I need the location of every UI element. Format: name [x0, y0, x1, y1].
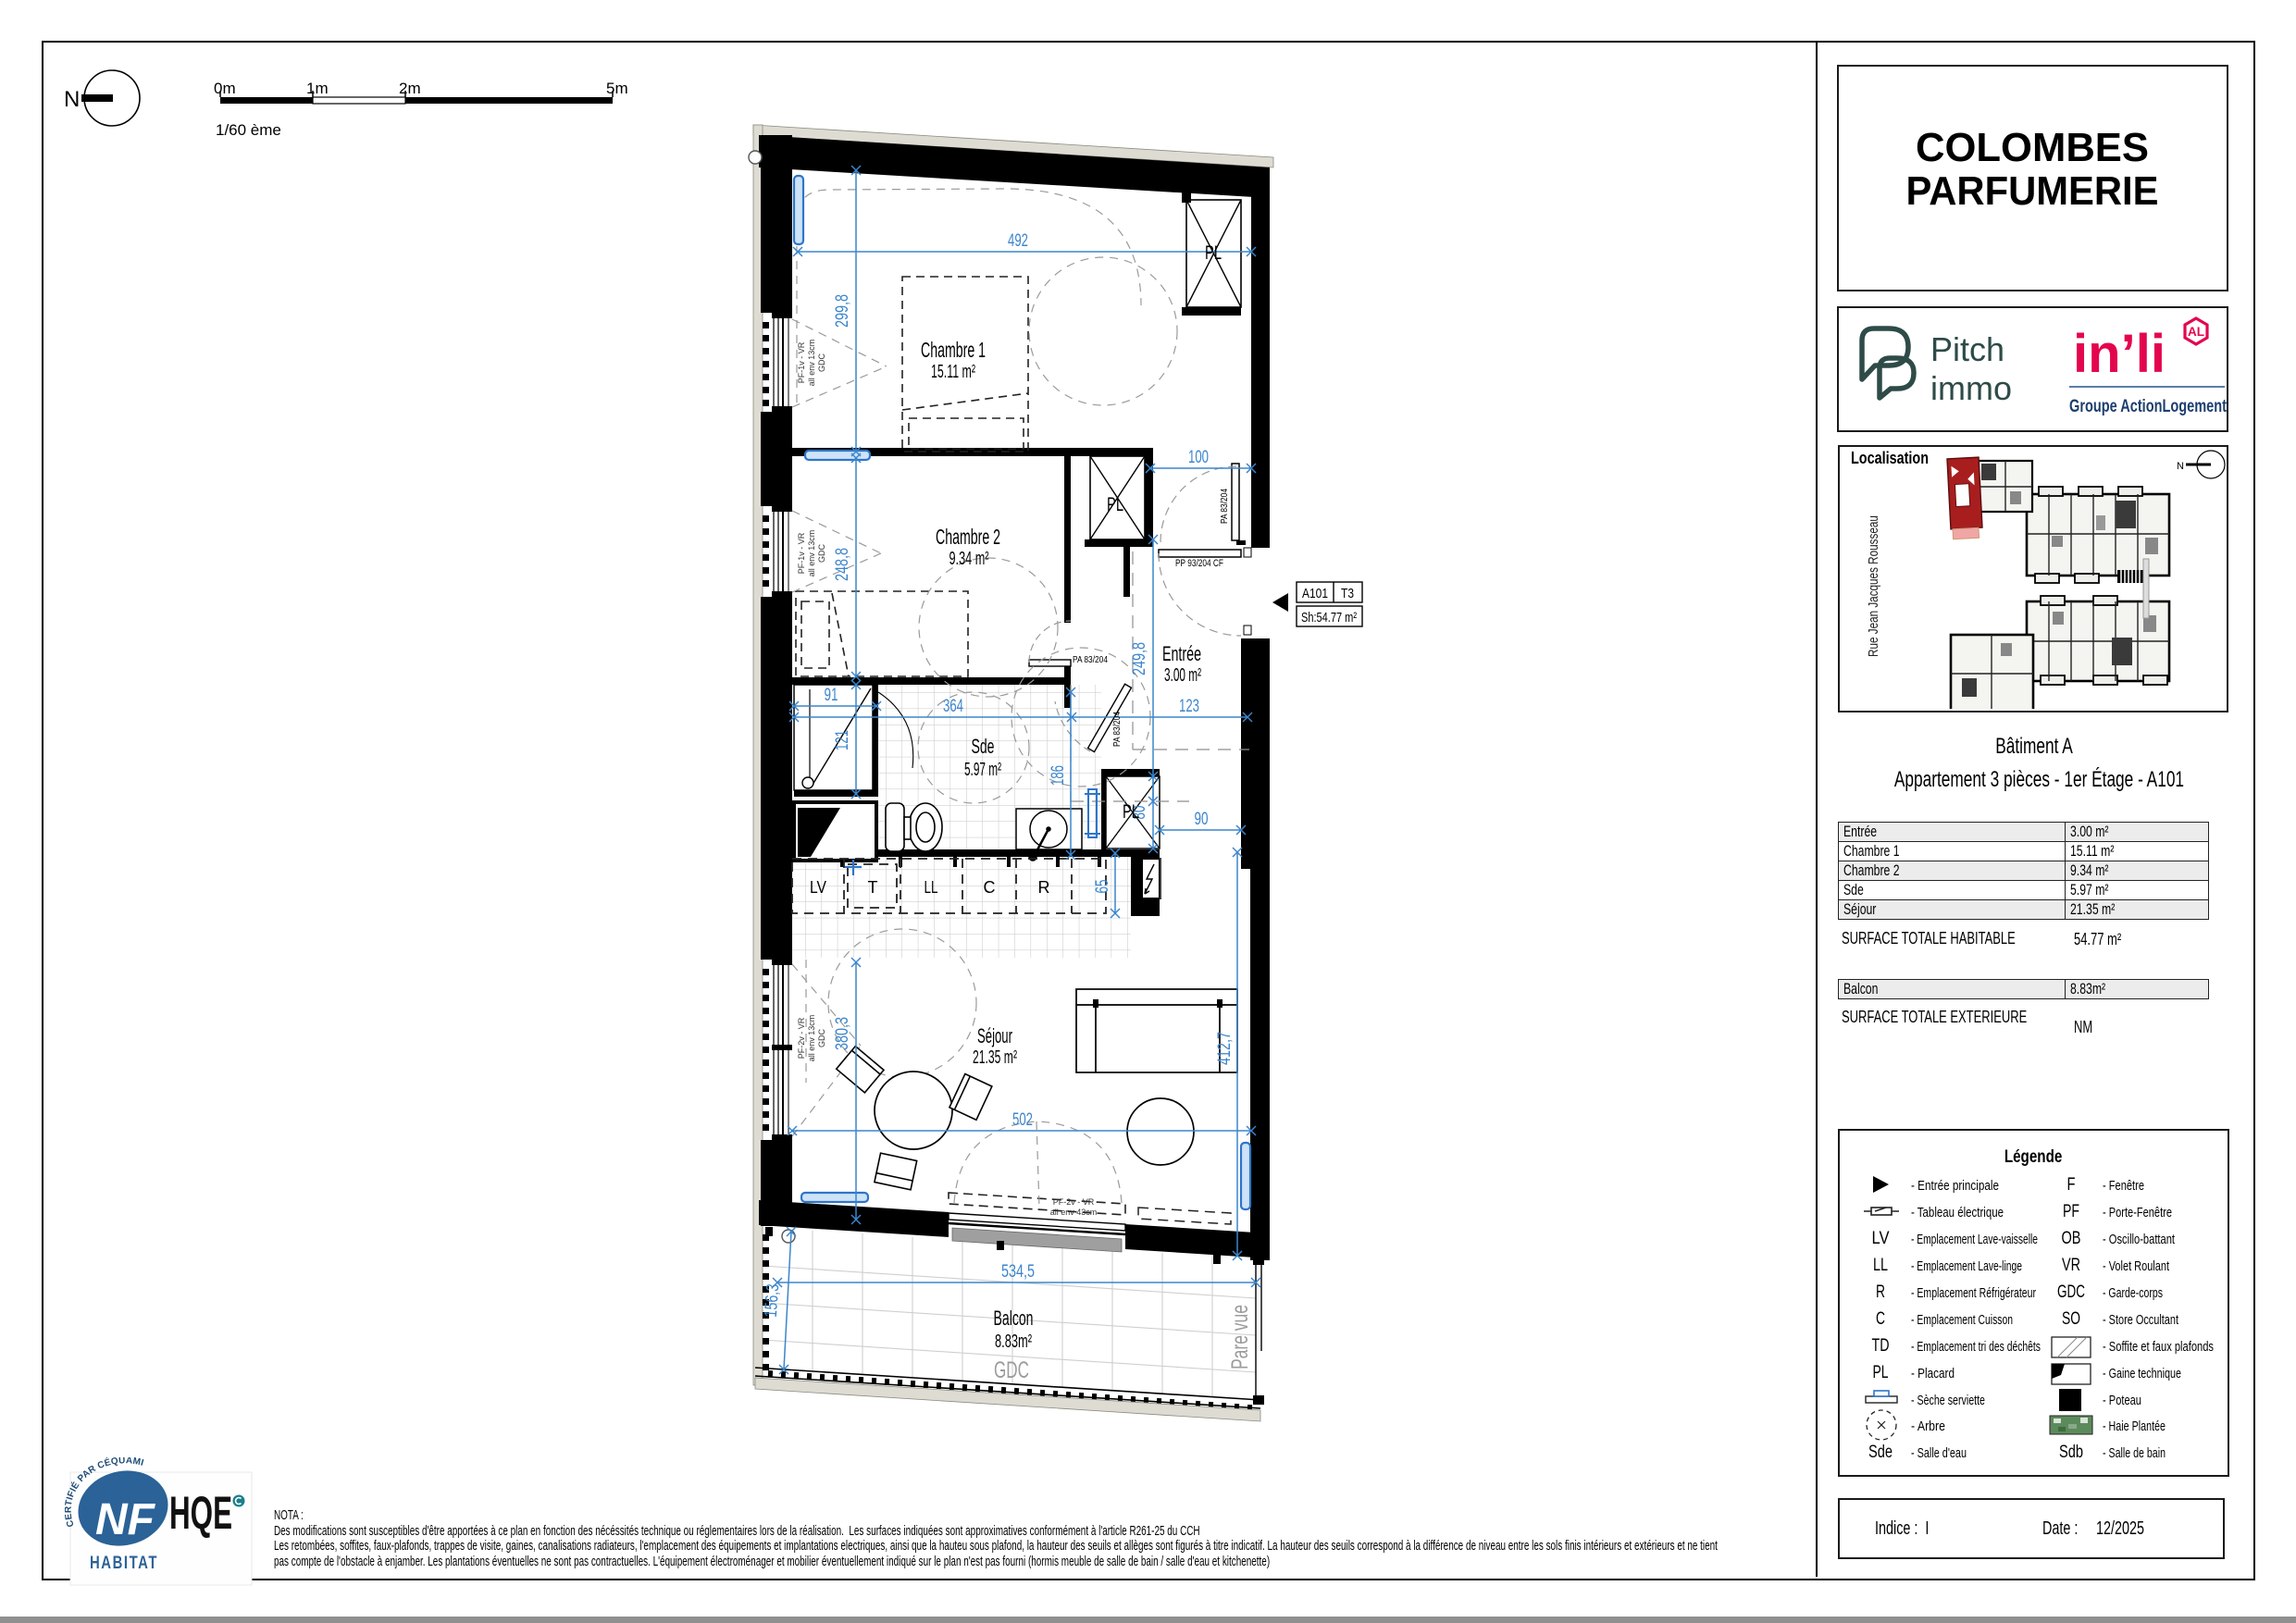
- svg-text:186: 186: [1049, 765, 1068, 786]
- svg-text:9.34 m²: 9.34 m²: [949, 549, 989, 569]
- svg-text:PA 83/204: PA 83/204: [1220, 489, 1230, 524]
- svg-text:PA 83/204: PA 83/204: [1112, 712, 1123, 747]
- svg-text:Chambre 1: Chambre 1: [921, 338, 986, 362]
- svg-text:A101: A101: [1302, 586, 1328, 601]
- svg-text:LV: LV: [810, 878, 826, 897]
- svg-text:Sh:54.77 m²: Sh:54.77 m²: [1301, 610, 1357, 626]
- svg-text:GDC: GDC: [817, 1029, 826, 1048]
- svg-text:534,5: 534,5: [1001, 1262, 1035, 1282]
- svg-text:T: T: [868, 878, 878, 897]
- svg-text:100: 100: [1188, 448, 1209, 467]
- svg-text:all env 13cm: all env 13cm: [807, 530, 816, 577]
- svg-text:PF-2v - VR: PF-2v - VR: [1053, 1197, 1095, 1207]
- svg-text:Pare vue: Pare vue: [1227, 1305, 1253, 1369]
- svg-text:156,3: 156,3: [762, 1283, 783, 1318]
- svg-text:Balcon: Balcon: [994, 1307, 1034, 1330]
- svg-text:PL: PL: [1205, 242, 1222, 264]
- svg-text:90: 90: [1195, 810, 1209, 829]
- svg-text:21.35 m²: 21.35 m²: [973, 1047, 1017, 1068]
- svg-text:65: 65: [1093, 880, 1112, 894]
- svg-text:GDC: GDC: [817, 544, 826, 564]
- svg-text:91: 91: [825, 686, 838, 705]
- svg-text:Chambre 2: Chambre 2: [936, 525, 1000, 549]
- svg-text:380,3: 380,3: [833, 1017, 852, 1050]
- svg-text:248,8: 248,8: [833, 548, 852, 581]
- svg-text:299,8: 299,8: [833, 294, 852, 328]
- svg-text:all env 43cm: all env 43cm: [1050, 1208, 1098, 1217]
- svg-text:5.97 m²: 5.97 m²: [964, 760, 1001, 780]
- svg-text:C: C: [984, 878, 996, 897]
- svg-text:R: R: [1038, 878, 1050, 897]
- svg-text:PP 93/204 CF: PP 93/204 CF: [1175, 558, 1223, 569]
- svg-text:15.11 m²: 15.11 m²: [931, 362, 975, 382]
- svg-text:249,8: 249,8: [1130, 642, 1149, 675]
- svg-text:all env 13cm: all env 13cm: [807, 1015, 816, 1062]
- svg-text:3.00 m²: 3.00 m²: [1164, 665, 1201, 686]
- svg-text:502: 502: [1012, 1110, 1033, 1130]
- svg-text:8.83m²: 8.83m²: [995, 1332, 1032, 1352]
- svg-text:PF-1v - VR: PF-1v - VR: [797, 532, 806, 574]
- svg-text:PA 83/204: PA 83/204: [1073, 655, 1108, 665]
- svg-text:PL: PL: [1123, 801, 1139, 823]
- svg-text:Séjour: Séjour: [977, 1024, 1012, 1047]
- svg-text:PF-1v - VR: PF-1v - VR: [797, 341, 806, 383]
- svg-text:492: 492: [1008, 231, 1028, 251]
- svg-text:GDC: GDC: [817, 353, 826, 373]
- svg-text:123: 123: [1179, 697, 1199, 716]
- svg-text:364: 364: [943, 697, 963, 716]
- svg-text:T3: T3: [1341, 586, 1354, 601]
- svg-text:GDC: GDC: [994, 1357, 1029, 1383]
- svg-text:LL: LL: [925, 878, 938, 897]
- svg-text:PL: PL: [1107, 494, 1123, 515]
- svg-text:Entrée: Entrée: [1162, 642, 1201, 665]
- svg-text:all env 13cm: all env 13cm: [807, 340, 816, 387]
- svg-text:Sde: Sde: [972, 735, 995, 758]
- svg-text:412,7: 412,7: [1215, 1032, 1235, 1065]
- svg-text:121: 121: [833, 730, 852, 750]
- svg-text:PF-2v - VR: PF-2v - VR: [797, 1017, 806, 1059]
